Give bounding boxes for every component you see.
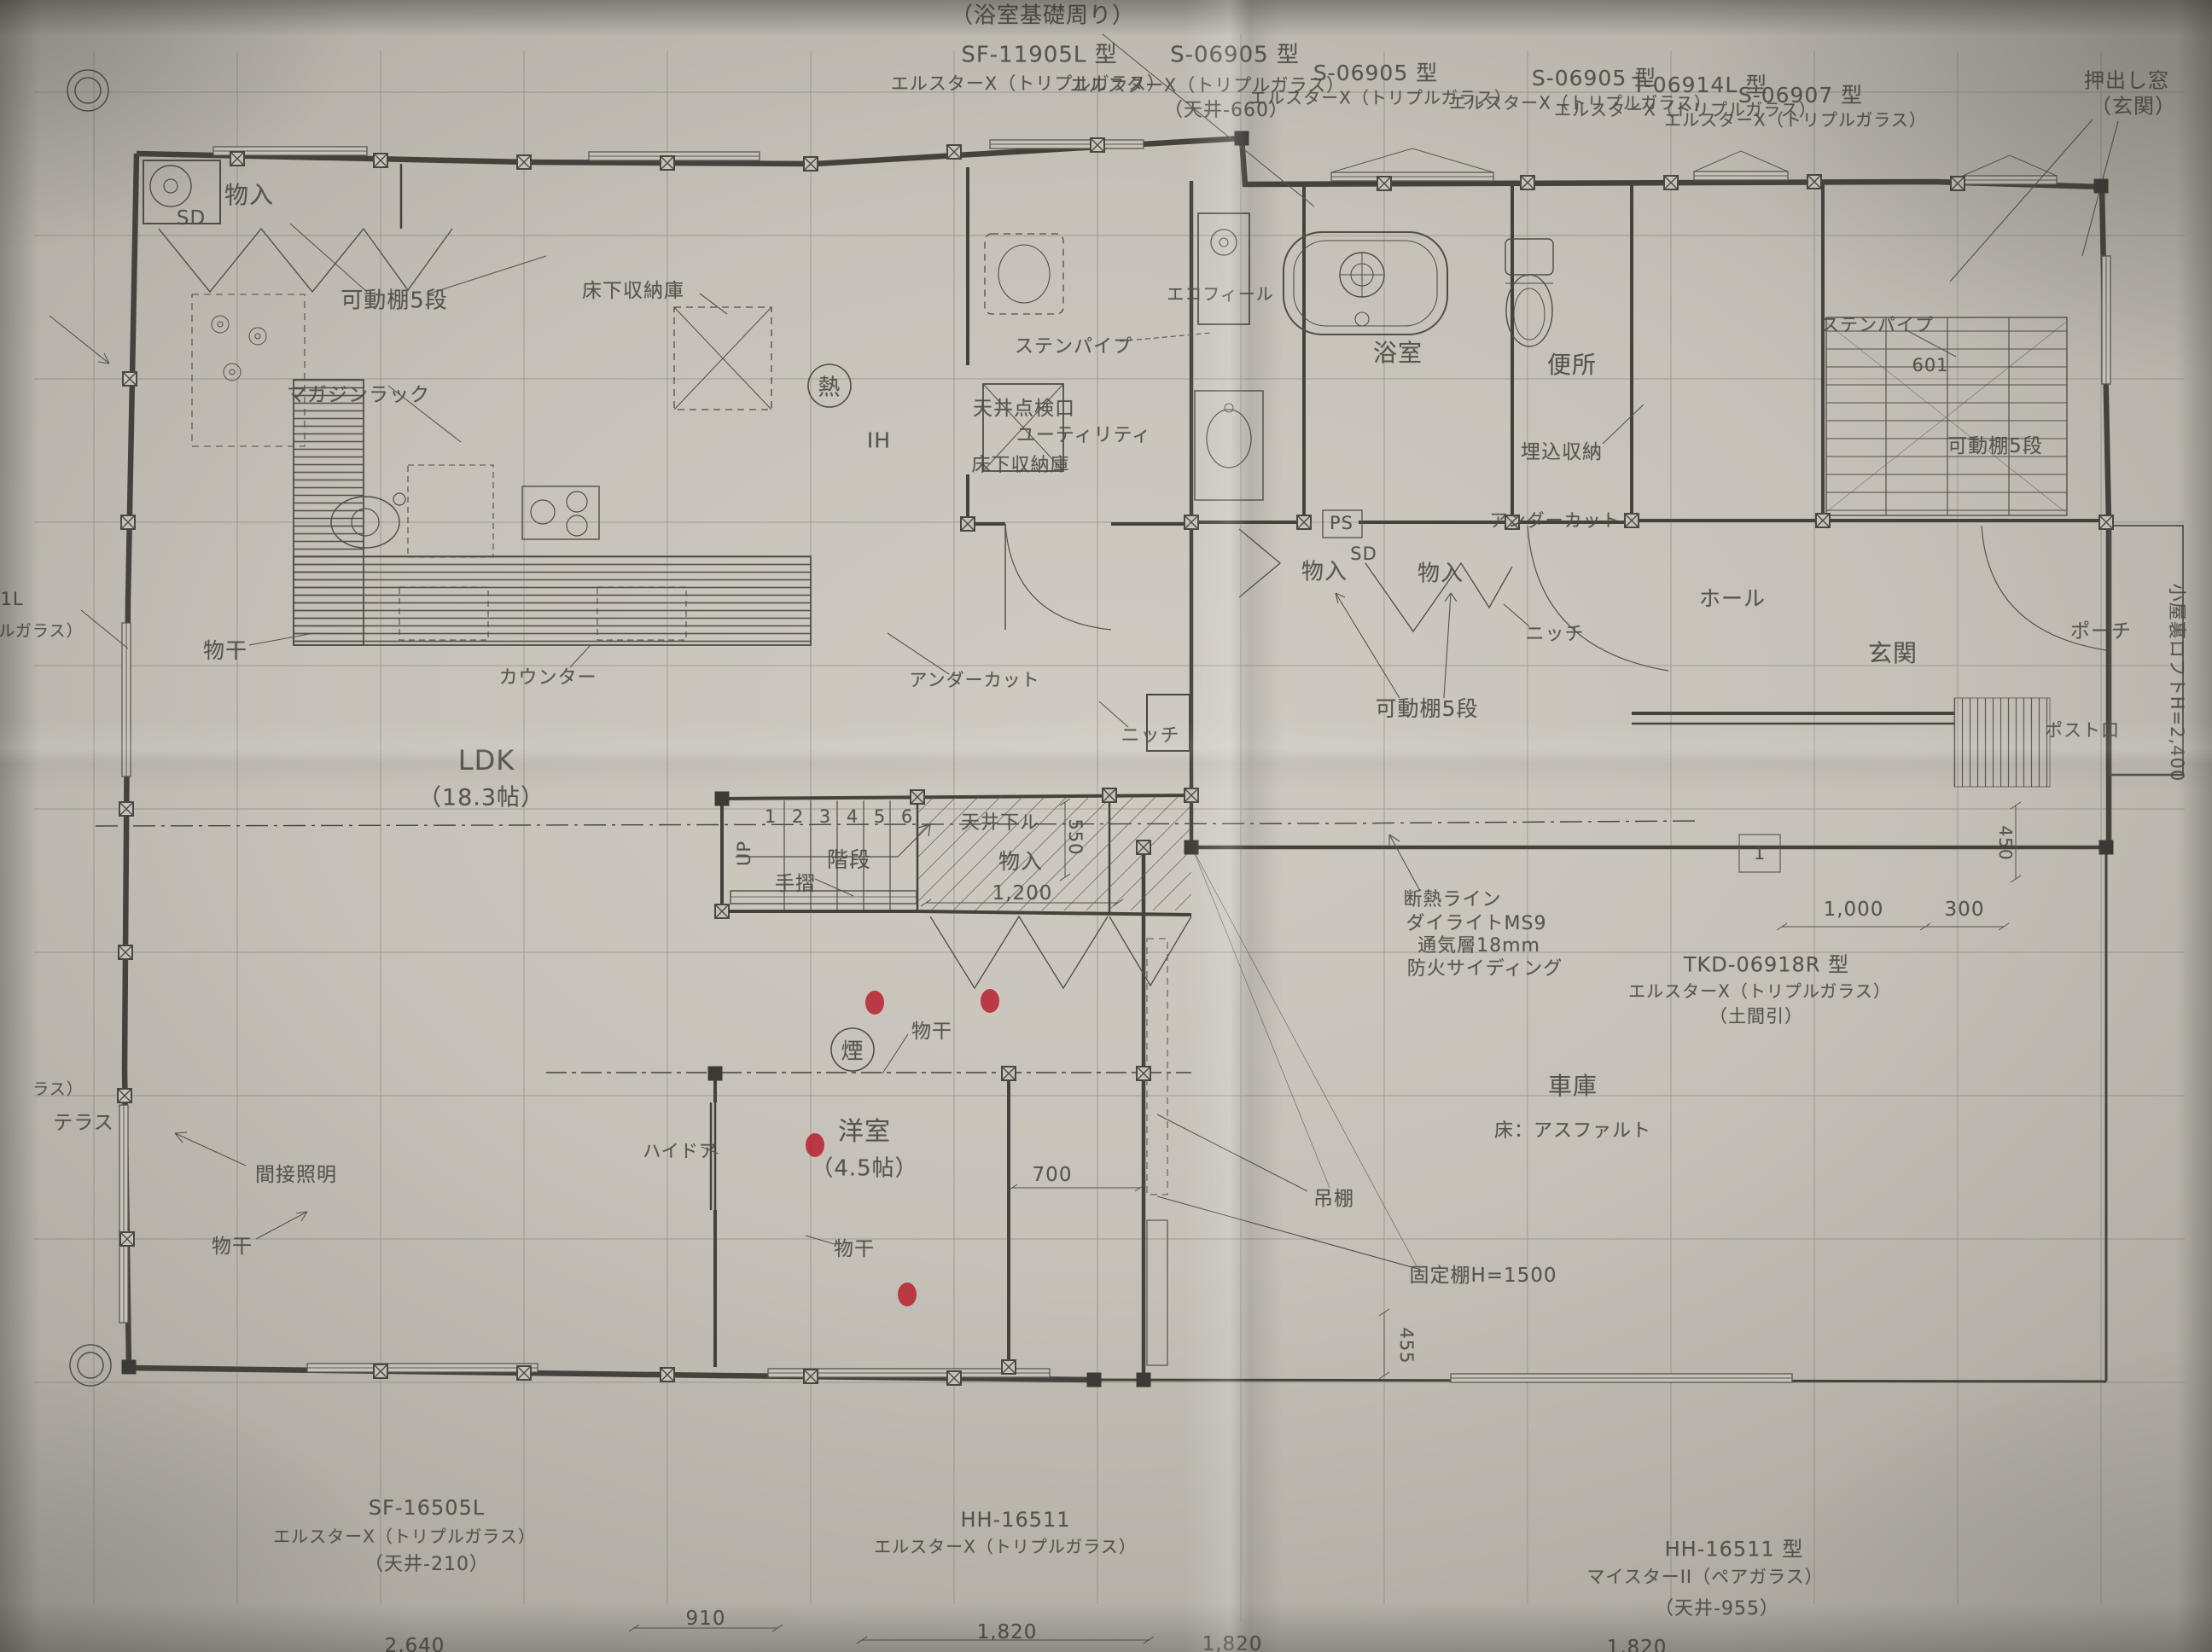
- stair-number: 5: [874, 806, 886, 827]
- window-spec-model: TKD-06918R 型: [1684, 948, 1849, 978]
- closet-label: 物入: [1301, 555, 1348, 586]
- dim-450: 450: [1995, 825, 2016, 860]
- counter-label: カウンター: [498, 662, 597, 689]
- dim-455: 455: [1396, 1327, 1417, 1364]
- magazine-rack-label: マガジンラック: [287, 378, 430, 407]
- ceiling-lower-label: 天井下ル: [961, 807, 1039, 835]
- pipe-space-label: PS: [1330, 513, 1353, 533]
- hanging-shelf-label: 吊棚: [1313, 1182, 1354, 1211]
- door-label-sd: SD: [177, 207, 206, 230]
- dim-300: 300: [1945, 899, 1985, 921]
- closet-label: 物入: [998, 845, 1043, 875]
- pipe-label: ステンパイプ: [1015, 331, 1132, 358]
- note-pushout-window-loc: （玄関）: [2091, 90, 2176, 119]
- high-door-label: ハイドア: [643, 1137, 718, 1163]
- stair-number: 1: [765, 806, 777, 827]
- shelf-note: 601: [1912, 355, 1948, 375]
- dim-1: 1: [1754, 843, 1766, 864]
- stair-number: 2: [792, 806, 804, 827]
- shelf-label: 可動棚5段: [341, 283, 448, 315]
- shelf-label: 可動棚5段: [1376, 692, 1479, 723]
- handrail-label: 手摺: [775, 867, 816, 896]
- boiler-label: エコフィール: [1167, 281, 1274, 305]
- garage-floor-label: 床：アスファルト: [1494, 1115, 1651, 1143]
- shelf-label: 可動棚5段: [1947, 429, 2043, 458]
- label-layer: （浴室基礎周り）SF-11905L 型エルスターX（トリプルガラス）S-0690…: [0, 0, 2212, 1652]
- stair-up-label: UP: [734, 841, 754, 866]
- door-label-sd: SD: [1350, 544, 1377, 564]
- window-spec-model: S-06907 型: [1738, 79, 1863, 109]
- closet-label: 物入: [1417, 556, 1464, 588]
- room-label-porch: ポーチ: [2070, 614, 2132, 643]
- dim-700: 700: [1033, 1164, 1073, 1186]
- pipe-label: ステンパイプ: [1821, 311, 1934, 337]
- room-size-yoshitsu: （4.5帖）: [811, 1151, 917, 1183]
- edge-spec-fragment: 1L: [0, 589, 23, 609]
- stairs-label: 階段: [827, 843, 871, 874]
- floor-storage-label: 床下収納庫: [971, 450, 1069, 477]
- laundry-pole-label: 物干: [212, 1230, 253, 1259]
- utility-room-label: ユーティリティ: [1016, 420, 1151, 447]
- room-size-ldk: （18.3帖）: [418, 779, 544, 812]
- undercut-label: アンダーカット: [909, 666, 1039, 692]
- mail-slot-label: ポスト口: [2045, 717, 2120, 742]
- window-spec-glass: エルスターX（トリプルガラス）: [1664, 107, 1927, 131]
- window-spec-glass: エルスターX（トリプルガラス）: [1628, 978, 1891, 1003]
- window-spec-note: （天井-210）: [364, 1549, 489, 1576]
- recessed-storage-label: 埋込収納: [1521, 435, 1603, 464]
- window-spec-note: （土間引）: [1709, 1003, 1803, 1028]
- room-label-genkan: 玄関: [1868, 635, 1918, 669]
- fixed-shelf-label: 固定棚H=1500: [1409, 1259, 1557, 1288]
- siding-label: 防火サイディング: [1407, 953, 1563, 980]
- ceiling-hatch-label: 天井点検口: [973, 392, 1075, 421]
- window-spec-model: HH-16511 型: [1665, 1533, 1804, 1562]
- loft-note: 小屋裏ロフトH=2,400: [2165, 584, 2191, 782]
- window-spec-model: S-06905 型: [1170, 38, 1300, 69]
- dim-2640: 2,640: [385, 1635, 445, 1652]
- room-label-ldk: LDK: [458, 744, 515, 777]
- window-spec-model: SF-16505L: [369, 1496, 485, 1520]
- closet-label: 物入: [224, 177, 274, 211]
- dim-910: 910: [686, 1608, 726, 1630]
- floor-storage-label: 床下収納庫: [582, 274, 684, 303]
- undercut-label: アンダーカット: [1489, 507, 1620, 532]
- ih-cooktop-label: IH: [867, 428, 891, 453]
- dim-1000: 1,000: [1824, 899, 1884, 921]
- floor-plan-photo: （浴室基礎周り）SF-11905L 型エルスターX（トリプルガラス）S-0690…: [0, 0, 2212, 1652]
- room-label-hall: ホール: [1699, 582, 1766, 613]
- laundry-pole-label: 物干: [203, 634, 247, 665]
- window-spec-model: S-06905 型: [1313, 56, 1438, 87]
- laundry-pole-label: 物干: [834, 1232, 875, 1261]
- stair-number: 6: [901, 806, 913, 827]
- dim-1820: 1,820: [1607, 1637, 1668, 1652]
- window-spec-glass: マイスターII（ペアガラス）: [1586, 1563, 1823, 1589]
- laundry-pole-label: 物干: [911, 1015, 952, 1044]
- niche-label: ニッチ: [1121, 720, 1179, 747]
- edge-spec-fragment: ルガラス）: [0, 619, 84, 642]
- stair-number: 4: [847, 806, 859, 827]
- window-spec-glass: エルスターX（トリプルガラス）: [273, 1523, 536, 1548]
- dim-1820: 1,820: [1202, 1633, 1263, 1652]
- window-spec-model: SF-11905L 型: [961, 38, 1117, 69]
- smoke-detector-label: 煙: [841, 1034, 864, 1066]
- room-label-bath: 浴室: [1373, 334, 1423, 369]
- dim-1200: 1,200: [992, 882, 1053, 905]
- edge-spec-fragment: ラス）: [32, 1077, 84, 1100]
- dim-1820: 1,820: [977, 1621, 1038, 1643]
- niche-label: ニッチ: [1525, 619, 1584, 646]
- indirect-light-label: 間接照明: [255, 1158, 337, 1187]
- window-spec-note: （天井-955）: [1655, 1593, 1779, 1620]
- room-label-garage: 車庫: [1548, 1067, 1598, 1102]
- stair-number: 3: [819, 806, 831, 827]
- window-spec-model: HH-16511: [960, 1508, 1070, 1532]
- dim-550: 550: [1065, 818, 1086, 855]
- note-bath-foundation: （浴室基礎周り）: [951, 0, 1135, 30]
- room-label-yoshitsu: 洋室: [838, 1110, 891, 1148]
- room-label-toilet: 便所: [1547, 346, 1597, 381]
- room-label-terrace: テラス: [53, 1106, 114, 1135]
- heat-detector-label: 熱: [818, 370, 841, 402]
- window-spec-glass: エルスターX（トリプルガラス）: [874, 1533, 1137, 1558]
